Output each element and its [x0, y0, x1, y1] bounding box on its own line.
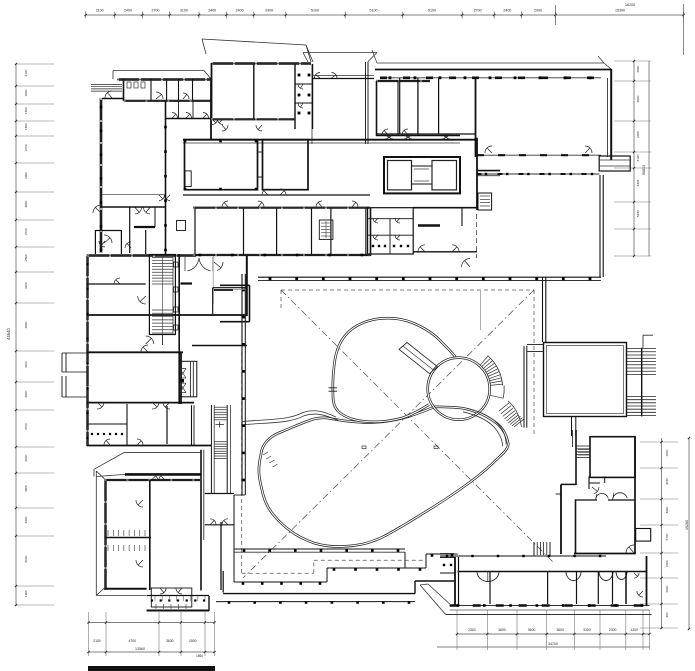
svg-text:13560: 13560 — [135, 647, 145, 651]
svg-text:19260: 19260 — [685, 520, 689, 530]
svg-text:1500: 1500 — [24, 107, 28, 114]
svg-text:1500: 1500 — [24, 123, 28, 130]
svg-text:2600: 2600 — [665, 585, 669, 592]
svg-text:2900: 2900 — [24, 172, 28, 179]
svg-text:2800: 2800 — [24, 200, 28, 207]
svg-text:1800: 1800 — [24, 89, 28, 96]
svg-text:4700: 4700 — [129, 639, 137, 643]
svg-text:2800: 2800 — [636, 65, 640, 72]
svg-text:2700: 2700 — [152, 9, 160, 13]
svg-text:3800: 3800 — [498, 628, 506, 632]
svg-text:34700: 34700 — [548, 642, 558, 646]
svg-text:3630: 3630 — [166, 639, 174, 643]
svg-text:2700: 2700 — [24, 144, 28, 151]
svg-text:3300: 3300 — [583, 628, 591, 632]
svg-text:1200: 1200 — [630, 628, 638, 632]
svg-text:3500: 3500 — [24, 485, 28, 492]
svg-text:900: 900 — [665, 612, 669, 617]
svg-text:3100: 3100 — [24, 282, 28, 289]
svg-text:2400: 2400 — [208, 9, 216, 13]
svg-text:2300: 2300 — [468, 628, 476, 632]
svg-text:4500: 4500 — [636, 95, 640, 102]
svg-text:50813: 50813 — [642, 165, 646, 175]
svg-text:2400: 2400 — [665, 560, 669, 567]
svg-text:3600: 3600 — [556, 628, 564, 632]
svg-text:16200: 16200 — [625, 3, 635, 7]
svg-text:2120: 2120 — [636, 154, 640, 161]
svg-text:2900: 2900 — [534, 9, 542, 13]
svg-text:2100: 2100 — [24, 69, 28, 76]
svg-text:3700: 3700 — [24, 423, 28, 430]
svg-text:2700: 2700 — [474, 9, 482, 13]
svg-text:4900: 4900 — [24, 516, 28, 523]
svg-text:5230: 5230 — [636, 210, 640, 217]
svg-text:2400: 2400 — [636, 131, 640, 138]
svg-text:3040: 3040 — [665, 478, 669, 485]
svg-text:2400: 2400 — [124, 9, 132, 13]
svg-text:44640: 44640 — [6, 328, 11, 340]
svg-text:2700: 2700 — [24, 228, 28, 235]
svg-text:2100: 2100 — [96, 9, 104, 13]
svg-text:3100: 3100 — [180, 9, 188, 13]
svg-text:3100: 3100 — [24, 361, 28, 368]
svg-text:5100: 5100 — [370, 9, 378, 13]
svg-text:4800: 4800 — [24, 321, 28, 328]
svg-text:2100: 2100 — [93, 639, 101, 643]
svg-text:5000: 5000 — [24, 555, 28, 562]
svg-text:2500: 2500 — [24, 254, 28, 261]
svg-text:2600: 2600 — [24, 454, 28, 461]
svg-text:4302: 4302 — [636, 179, 640, 186]
svg-text:5100: 5100 — [311, 9, 319, 13]
svg-text:15300: 15300 — [615, 9, 625, 13]
svg-text:2700: 2700 — [665, 533, 669, 540]
svg-text:1560: 1560 — [196, 654, 203, 658]
svg-text:5100: 5100 — [428, 9, 436, 13]
svg-text:2400: 2400 — [236, 9, 244, 13]
svg-text:3600: 3600 — [528, 628, 536, 632]
svg-text:3900: 3900 — [665, 506, 669, 513]
svg-text:2400: 2400 — [503, 9, 511, 13]
svg-text:1500: 1500 — [665, 449, 669, 456]
svg-text:2300: 2300 — [609, 628, 617, 632]
svg-text:2800: 2800 — [24, 390, 28, 397]
svg-text:1900: 1900 — [24, 590, 28, 597]
svg-text:2900: 2900 — [265, 9, 273, 13]
svg-text:1500: 1500 — [189, 639, 197, 643]
